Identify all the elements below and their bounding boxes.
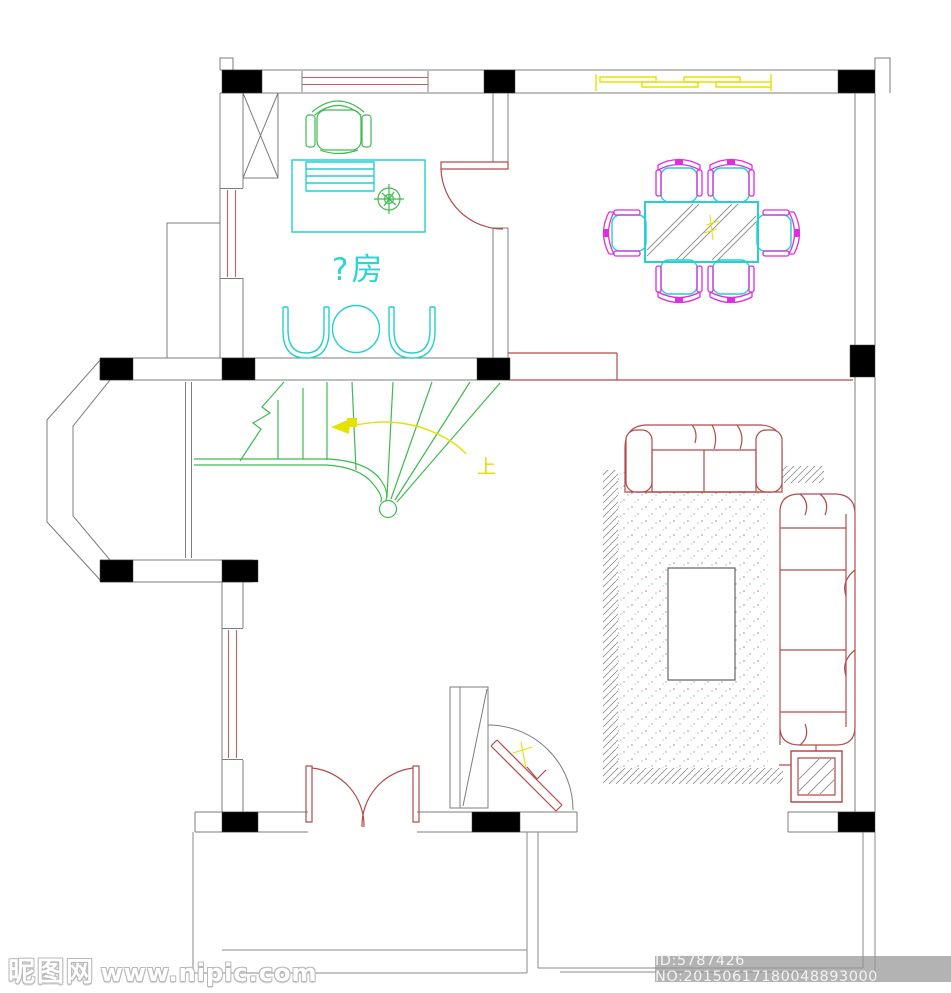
pivot-door-swing [488,725,573,810]
study-door [441,162,508,229]
double-entry-door [306,766,419,827]
stair-newel [380,501,397,518]
top-window-red [302,71,428,92]
shaft-x-symbol [243,93,278,178]
sofa-two-seat [625,425,782,492]
rug-border-bottom [603,768,783,784]
dining-table [645,202,758,262]
desk-lamp-symbol [374,184,404,214]
stairs-up-label: 上 [477,456,496,478]
study-room-label: ?房 [332,252,385,288]
floor-plan-drawing: ?房 [0,0,951,993]
closet-bumpout [167,223,220,358]
stair-rail-wall [186,382,192,558]
coffee-table [668,568,735,680]
rug-border-top [782,466,824,483]
side-table [779,745,847,807]
image-id-text: ID:5787426 NO:20150617180048893000 [655,953,951,985]
entry-cabinet [450,687,488,808]
living-room [603,425,855,807]
hall-side-window [229,630,237,758]
staircase: 上 [194,382,500,518]
study-side-window [228,190,236,277]
tea-table [333,306,380,353]
bay-window-inner [73,380,110,560]
site-name: 昵图网 [8,957,95,988]
rug-border-left [603,470,618,770]
floor-step-edge [508,353,853,380]
site-url: www.nipic.com [101,959,318,987]
top-window-yellow [596,74,771,91]
study-room: ?房 [283,101,508,358]
site-watermark: 昵图网 www.nipic.com [8,950,317,989]
dining-table-glass-hatch [647,204,756,260]
floor-plan-page: ?房 [0,0,951,993]
image-id-watermark: ID:5787426 NO:20150617180048893000 [655,956,951,982]
stair-rail-inner [194,465,381,502]
entrance [306,687,573,827]
stair-treads-fan [387,382,500,502]
sofa-three-seat [780,494,855,745]
bay-window-outer [47,358,102,582]
tea-table-set [283,306,435,359]
stair-direction-arrow [331,418,466,454]
desk [292,160,425,232]
pivot-door-leaf [491,740,562,811]
office-chair [306,101,371,154]
dining-room [508,160,853,381]
tea-chair-left [283,307,329,358]
tea-chair-right [389,307,435,358]
